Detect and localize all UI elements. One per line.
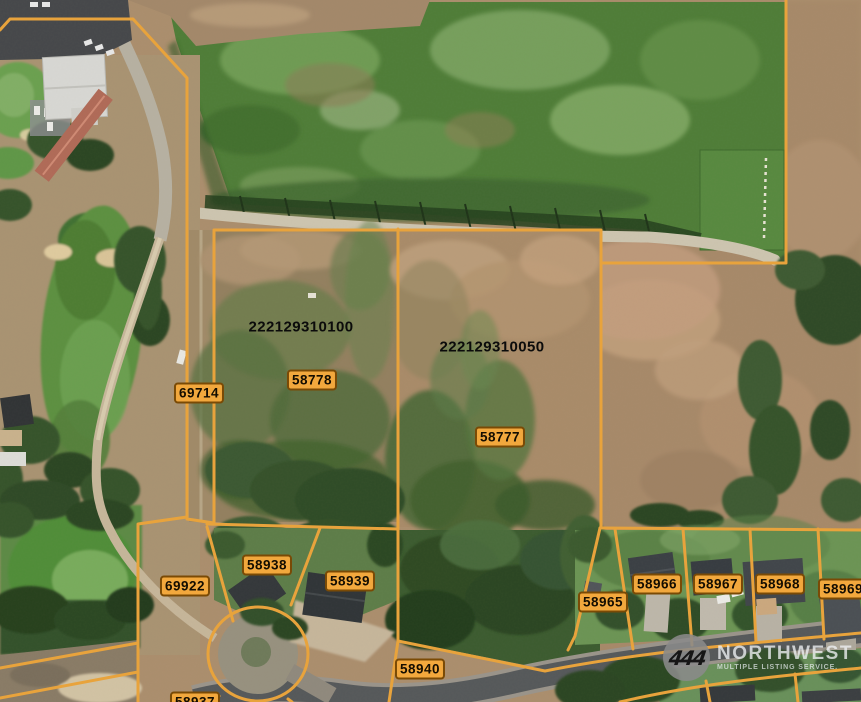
nwmls-tagline: MULTIPLE LISTING SERVICE. [717, 664, 853, 671]
lot-number-label: 58965 [578, 592, 628, 613]
parcel-id-text: 222129310100 [249, 319, 354, 336]
lot-number-label: 69714 [174, 383, 224, 404]
lot-number-label: 58939 [325, 571, 375, 592]
lot-number-label: 69922 [160, 576, 210, 597]
parcel-id-text: 222129310050 [440, 339, 545, 356]
nwmls-watermark-text: NORTHWEST MULTIPLE LISTING SERVICE. [717, 645, 853, 671]
lot-number-label: 58968 [755, 574, 805, 595]
lot-number-label: 58966 [632, 574, 682, 595]
nwmls-name: NORTHWEST [717, 645, 853, 663]
lot-number-label: 58940 [395, 659, 445, 680]
lot-number-label: 58777 [475, 427, 525, 448]
lot-number-label: 58937 [170, 692, 220, 702]
lot-number-label: 58967 [693, 574, 743, 595]
nwmls-logo-glyph: 444 [667, 646, 706, 670]
satellite-parcel-map: 2221293101002221293100505877858777697146… [0, 0, 861, 702]
parcel-labels-layer: 2221293101002221293100505877858777697146… [0, 0, 861, 702]
lot-number-label: 58938 [242, 555, 292, 576]
lot-number-label: 58778 [287, 370, 337, 391]
nwmls-watermark: 444 NORTHWEST MULTIPLE LISTING SERVICE. [663, 634, 853, 681]
lot-number-label: 58969 [818, 579, 861, 600]
nwmls-logo-icon: 444 [663, 634, 710, 681]
